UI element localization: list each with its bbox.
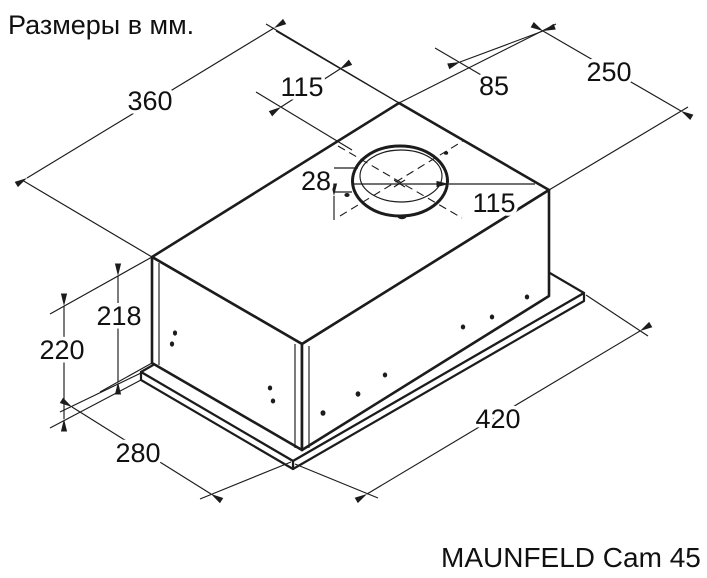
dim-85: 85 [435,31,543,101]
dim-280-label: 280 [115,438,160,468]
dim-250-ext-left [399,24,556,103]
dim-85-line [460,31,543,62]
dim-280-ext-left [60,373,141,412]
dim-420-ext-right [586,295,648,336]
dim-360-label: 360 [127,86,172,116]
dim-28-label: 28 [301,166,331,196]
model-caption: MAUNFELD Cam 45 [441,542,701,573]
dim-420-label: 420 [475,404,520,434]
technical-drawing-page: 360 115 85 250 28 [0,0,707,578]
dim-250-label: 250 [586,57,631,87]
dim-360-ext-left [22,180,152,257]
dim-280-ext-right [200,462,291,499]
dim-220-label: 220 [39,335,84,365]
dim-420-ext-left [295,464,378,498]
dim-218: 218 [50,257,152,392]
dim-115-top-label: 115 [280,72,323,102]
collar-outer-ring [353,146,448,216]
page-title: Размеры в мм. [8,10,194,40]
hood-body [152,103,549,450]
dim-85-label: 85 [479,71,509,101]
dim-218-label: 218 [96,301,141,331]
dim-115-dia-label: 115 [472,188,515,218]
hood-dimension-drawing: 360 115 85 250 28 [0,0,707,578]
dim-250-ext-right [549,107,688,190]
